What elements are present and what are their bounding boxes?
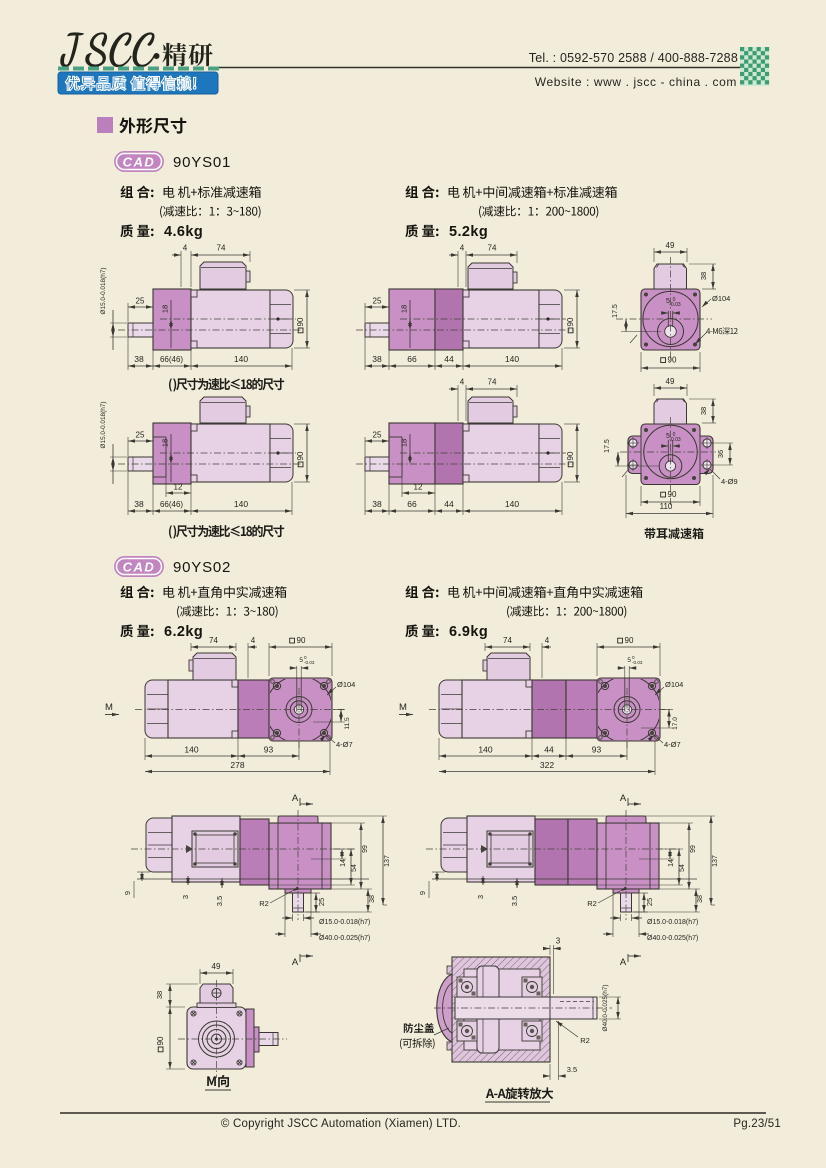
- svg-text:54: 54: [679, 864, 686, 872]
- svg-text:Ø40.0-0.025(h7): Ø40.0-0.025(h7): [602, 985, 609, 1032]
- svg-text:90: 90: [156, 1036, 165, 1045]
- svg-text:38: 38: [372, 354, 382, 364]
- svg-text:90: 90: [668, 490, 677, 499]
- svg-text:322: 322: [540, 760, 554, 770]
- svg-text:4: 4: [251, 636, 256, 645]
- svg-text:38: 38: [155, 991, 164, 999]
- svg-text:90: 90: [566, 451, 575, 460]
- svg-text:12: 12: [414, 483, 423, 492]
- svg-text:17.0: 17.0: [672, 717, 679, 730]
- svg-text:44: 44: [544, 745, 554, 755]
- svg-text:3: 3: [476, 895, 485, 899]
- svg-text:93: 93: [592, 745, 602, 755]
- svg-text:3: 3: [181, 895, 190, 899]
- svg-text:90: 90: [296, 451, 305, 460]
- svg-text:9: 9: [123, 891, 132, 895]
- svg-text:5.2kg: 5.2kg: [449, 224, 488, 240]
- svg-text:4: 4: [460, 378, 465, 387]
- svg-text:18: 18: [400, 439, 409, 447]
- svg-text:11.5: 11.5: [344, 717, 351, 730]
- svg-text:74: 74: [209, 636, 218, 645]
- svg-text:93: 93: [264, 745, 274, 755]
- svg-text:4-Ø7: 4-Ø7: [664, 740, 681, 749]
- svg-text:140: 140: [234, 499, 248, 509]
- svg-text:R2: R2: [580, 1036, 590, 1045]
- svg-text:4-Ø7: 4-Ø7: [336, 740, 353, 749]
- svg-text:25: 25: [136, 297, 145, 306]
- svg-text:90: 90: [296, 317, 305, 326]
- svg-text:Ø104: Ø104: [665, 680, 683, 689]
- svg-text:66(46): 66(46): [160, 500, 183, 509]
- svg-text:CAD: CAD: [123, 155, 156, 170]
- svg-text:A: A: [292, 957, 299, 968]
- svg-text:38: 38: [134, 499, 144, 509]
- svg-text:140: 140: [184, 745, 198, 755]
- svg-text:49: 49: [666, 241, 675, 250]
- svg-text:140: 140: [505, 499, 519, 509]
- svg-text:9: 9: [418, 891, 427, 895]
- svg-text:25: 25: [373, 431, 382, 440]
- svg-text:110: 110: [660, 502, 673, 511]
- svg-text:4: 4: [183, 244, 188, 253]
- svg-text:74: 74: [488, 378, 497, 387]
- svg-text:5: 5: [627, 657, 631, 664]
- svg-text:6.9kg: 6.9kg: [449, 624, 488, 640]
- svg-text:90YS01: 90YS01: [173, 154, 231, 171]
- svg-text:137: 137: [712, 855, 719, 867]
- svg-text:4.6kg: 4.6kg: [164, 224, 203, 240]
- svg-text:4: 4: [545, 636, 550, 645]
- svg-text:Ø40.0-0.025(h7): Ø40.0-0.025(h7): [647, 935, 698, 942]
- svg-text:66(46): 66(46): [160, 355, 183, 364]
- svg-text:Ø104: Ø104: [337, 680, 355, 689]
- svg-text:-0.03: -0.03: [632, 660, 643, 665]
- svg-text:25: 25: [136, 431, 145, 440]
- svg-text:17.5: 17.5: [604, 439, 611, 453]
- svg-text:17.5: 17.5: [612, 304, 619, 318]
- svg-text:38: 38: [369, 895, 376, 903]
- svg-text:3.5: 3.5: [510, 896, 519, 906]
- svg-text:A: A: [292, 793, 299, 804]
- svg-text:54: 54: [351, 864, 358, 872]
- svg-text:90YS02: 90YS02: [173, 559, 231, 576]
- svg-text:A: A: [620, 793, 627, 804]
- svg-text:66: 66: [407, 499, 417, 509]
- svg-text:38: 38: [699, 272, 708, 280]
- svg-text:3: 3: [556, 937, 561, 946]
- svg-text:66: 66: [407, 354, 417, 364]
- svg-text:140: 140: [234, 354, 248, 364]
- svg-text:140: 140: [478, 745, 492, 755]
- svg-text:R2: R2: [259, 899, 269, 908]
- svg-text:CAD: CAD: [123, 560, 156, 575]
- svg-text:Ø40.0-0.025(h7): Ø40.0-0.025(h7): [319, 935, 370, 942]
- svg-text:M: M: [399, 702, 407, 713]
- svg-text:25: 25: [373, 297, 382, 306]
- svg-text:44: 44: [444, 354, 454, 364]
- svg-text:74: 74: [217, 244, 226, 253]
- svg-text:90: 90: [668, 356, 677, 365]
- svg-text:137: 137: [384, 855, 391, 867]
- svg-text:90: 90: [297, 636, 306, 645]
- svg-text:99: 99: [362, 845, 369, 853]
- svg-text:38: 38: [697, 895, 704, 903]
- svg-text:278: 278: [230, 760, 244, 770]
- svg-text:4-Ø9: 4-Ø9: [721, 477, 738, 486]
- svg-text:74: 74: [503, 636, 512, 645]
- svg-text:Ø15.0-0.018(h7): Ø15.0-0.018(h7): [100, 402, 107, 449]
- svg-text:14: 14: [340, 859, 347, 867]
- svg-text:38: 38: [134, 354, 144, 364]
- svg-text:74: 74: [488, 244, 497, 253]
- svg-text:A: A: [620, 957, 627, 968]
- svg-text:M: M: [105, 702, 113, 713]
- svg-text:18: 18: [400, 305, 409, 313]
- svg-text:6.2kg: 6.2kg: [164, 624, 203, 640]
- svg-text:25: 25: [645, 898, 654, 906]
- svg-text:0: 0: [673, 297, 676, 303]
- svg-text:0: 0: [632, 655, 635, 660]
- svg-text:14: 14: [668, 859, 675, 867]
- svg-text:90: 90: [625, 636, 634, 645]
- svg-text:R2: R2: [587, 899, 597, 908]
- svg-text:0: 0: [304, 655, 307, 660]
- svg-text:99: 99: [690, 845, 697, 853]
- svg-text:5: 5: [299, 657, 303, 664]
- svg-text:-0.03: -0.03: [304, 660, 315, 665]
- svg-text:49: 49: [212, 962, 221, 971]
- svg-text:12: 12: [174, 483, 183, 492]
- svg-text:4: 4: [460, 244, 465, 253]
- svg-text:90: 90: [566, 317, 575, 326]
- svg-text:18: 18: [161, 439, 170, 447]
- svg-text:140: 140: [505, 354, 519, 364]
- svg-text:0: 0: [673, 432, 676, 438]
- svg-text:18: 18: [161, 305, 170, 313]
- svg-text:Ø15.0-0.018(h7): Ø15.0-0.018(h7): [319, 919, 370, 926]
- svg-text:Website : www . jscc - china .: Website : www . jscc - china . com: [535, 75, 737, 89]
- svg-text:Tel. : 0592-570 2588 / 400-888: Tel. : 0592-570 2588 / 400-888-7288: [529, 51, 738, 65]
- svg-text:38: 38: [372, 499, 382, 509]
- svg-text:Ø15.0-0.018(h7): Ø15.0-0.018(h7): [647, 919, 698, 926]
- svg-text:3.5: 3.5: [567, 1065, 577, 1074]
- svg-text:Ø104: Ø104: [712, 294, 730, 303]
- svg-text:Ø15.0-0.018(h7): Ø15.0-0.018(h7): [100, 268, 107, 315]
- svg-text:38: 38: [699, 407, 708, 415]
- svg-text:49: 49: [666, 377, 675, 386]
- svg-text:3.5: 3.5: [215, 896, 224, 906]
- svg-text:Pg.23/51: Pg.23/51: [733, 1118, 781, 1130]
- svg-text:© Copyright JSCC Automation (X: © Copyright JSCC Automation (Xiamen) LTD…: [221, 1118, 461, 1130]
- svg-text:36: 36: [716, 450, 725, 458]
- svg-text:44: 44: [444, 499, 454, 509]
- svg-text:25: 25: [317, 898, 326, 906]
